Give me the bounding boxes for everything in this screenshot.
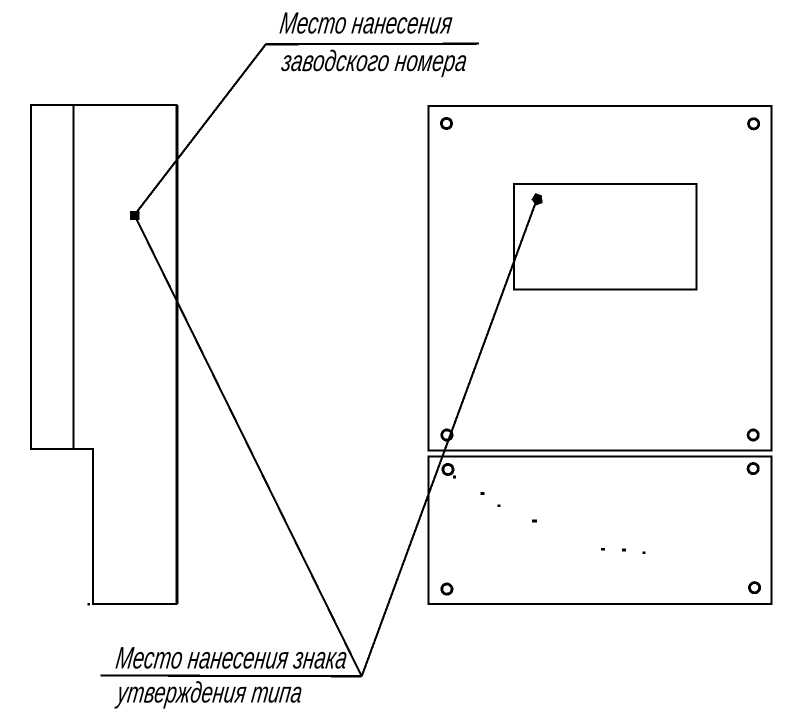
svg-text:Место нанесения: Место нанесения xyxy=(278,7,455,41)
svg-text:заводского номера: заводского номера xyxy=(279,45,469,78)
svg-text:Место нанесения знака: Место нанесения знака xyxy=(114,640,350,675)
svg-text:утверждения типа: утверждения типа xyxy=(114,677,304,710)
